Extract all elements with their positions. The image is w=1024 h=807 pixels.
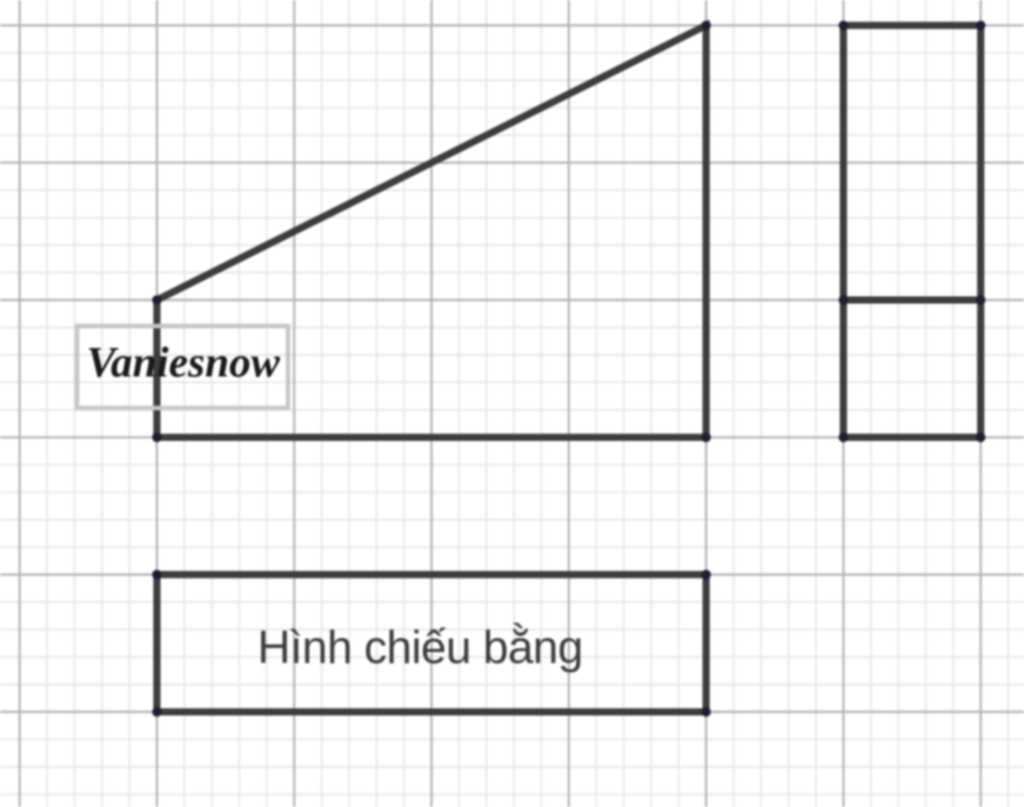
svg-text:Hình chiếu bằng: Hình chiếu bằng (257, 621, 582, 673)
svg-text:Vaniesnow: Vaniesnow (87, 339, 281, 387)
